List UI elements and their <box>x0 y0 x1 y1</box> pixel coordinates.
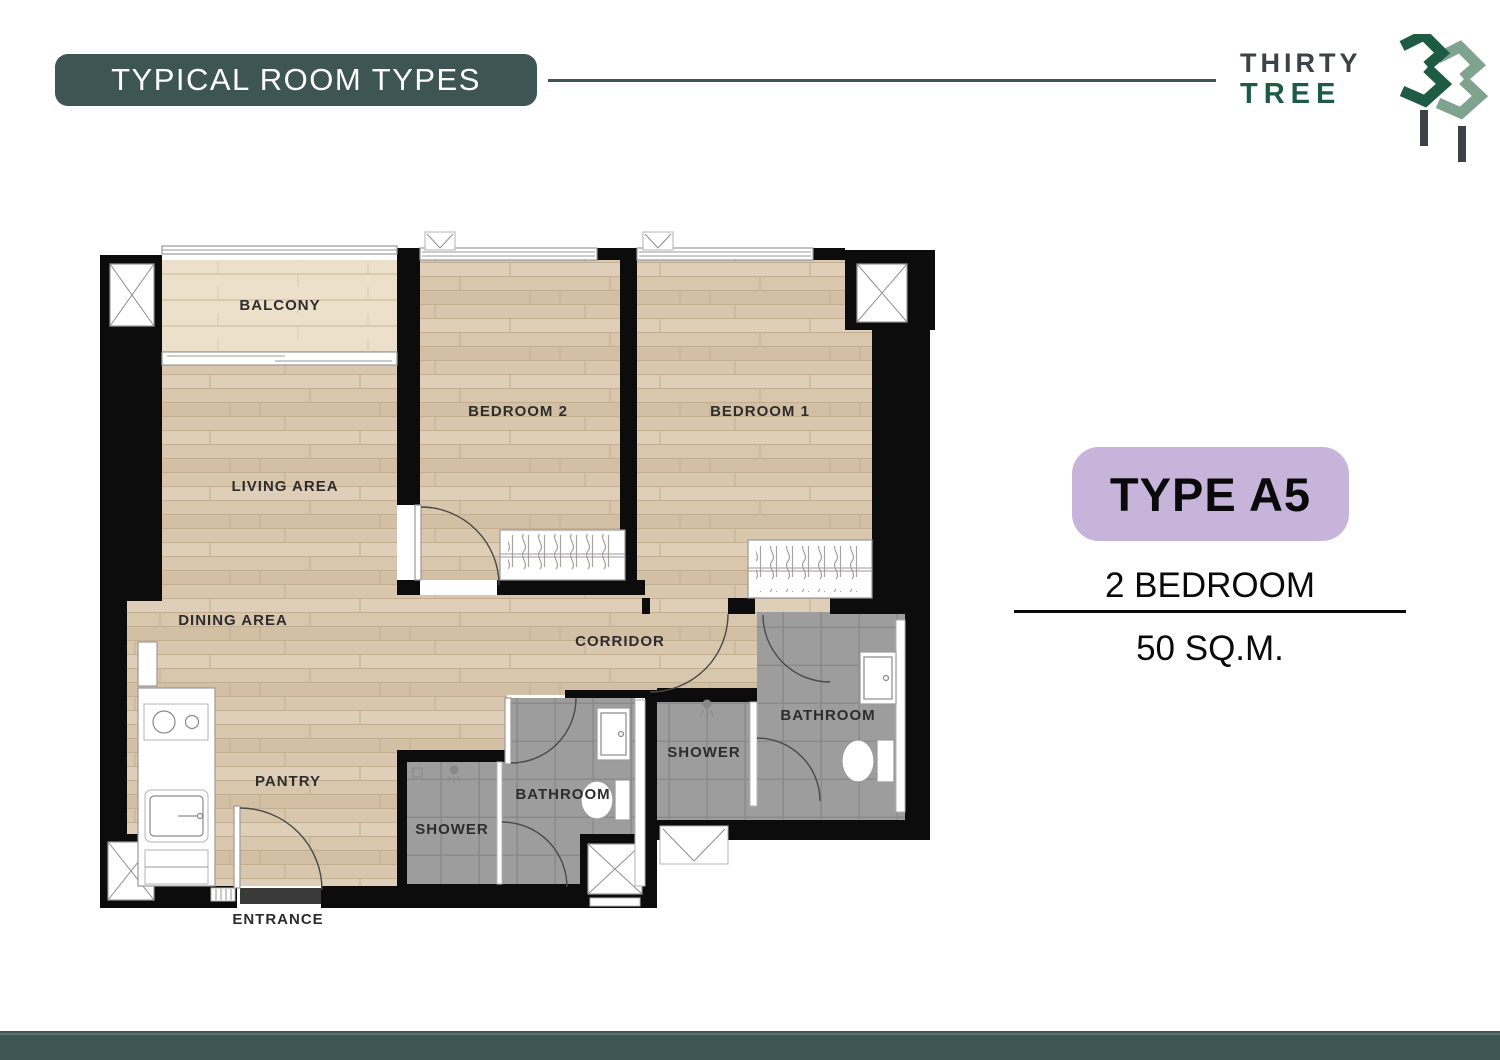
pantry-label: PANTRY <box>255 773 321 790</box>
bathroom-right-label: BATHROOM <box>780 707 875 724</box>
shower-glass-partition <box>750 702 757 806</box>
header-rule-line <box>548 79 1216 82</box>
shower-glass-partition <box>497 762 502 884</box>
wardrobe-icon <box>500 530 625 580</box>
page-title: TYPICAL ROOM TYPES <box>111 62 481 98</box>
column-x-icon <box>110 264 154 326</box>
brand-logo: THIRTY TREE <box>1240 49 1362 110</box>
wall-finish-strip <box>896 620 905 812</box>
page: { "header": { "title": "TYPICAL ROOM TYP… <box>0 0 1500 1060</box>
pantry-extension-floor <box>397 682 507 752</box>
living-area-label: LIVING AREA <box>231 478 338 495</box>
window-marker-icon <box>425 232 455 250</box>
bathroom-sink-icon <box>860 652 896 704</box>
kitchen-sink-icon <box>145 790 208 842</box>
shower-mid-label: SHOWER <box>415 821 489 838</box>
window-ledge-icon <box>660 826 728 864</box>
footer-bar <box>0 1031 1500 1060</box>
brand-word-tree: TREE <box>1240 79 1362 109</box>
unit-type-text: TYPE A5 <box>1110 467 1311 522</box>
bedroom2-label: BEDROOM 2 <box>468 403 568 420</box>
unit-type-badge: TYPE A5 <box>1072 447 1349 541</box>
page-title-box: TYPICAL ROOM TYPES <box>55 54 537 106</box>
balcony-label: BALCONY <box>239 297 320 314</box>
toilet-icon <box>842 740 894 782</box>
spec-divider-line <box>1014 610 1406 613</box>
floor-plan: BALCONY LIVING AREA DINING AREA PANTRY B… <box>100 226 935 926</box>
corridor-label: CORRIDOR <box>575 633 665 650</box>
wardrobe-icon <box>748 540 872 598</box>
bathroom-mid-label: BATHROOM <box>515 786 610 803</box>
entrance-label: ENTRANCE <box>232 911 323 926</box>
bedroom1-label: BEDROOM 1 <box>710 403 810 420</box>
wall-niche <box>138 642 157 686</box>
brand-word-thirty: THIRTY <box>1240 49 1362 77</box>
unit-area: 50 SQ.M. <box>1010 629 1410 669</box>
entrance-mat <box>240 888 321 904</box>
stove-icon <box>144 704 208 740</box>
brand-33-tree-icon <box>1380 34 1490 174</box>
bathroom-sink-icon <box>597 708 630 760</box>
shower-right-label: SHOWER <box>667 744 741 761</box>
sliding-door-icon <box>162 352 397 365</box>
column-x-icon <box>857 264 907 322</box>
dining-area-label: DINING AREA <box>178 612 288 629</box>
window-marker-icon <box>643 232 673 250</box>
wall-finish-strip <box>635 700 645 886</box>
unit-bedrooms: 2 BEDROOM <box>1010 566 1410 606</box>
